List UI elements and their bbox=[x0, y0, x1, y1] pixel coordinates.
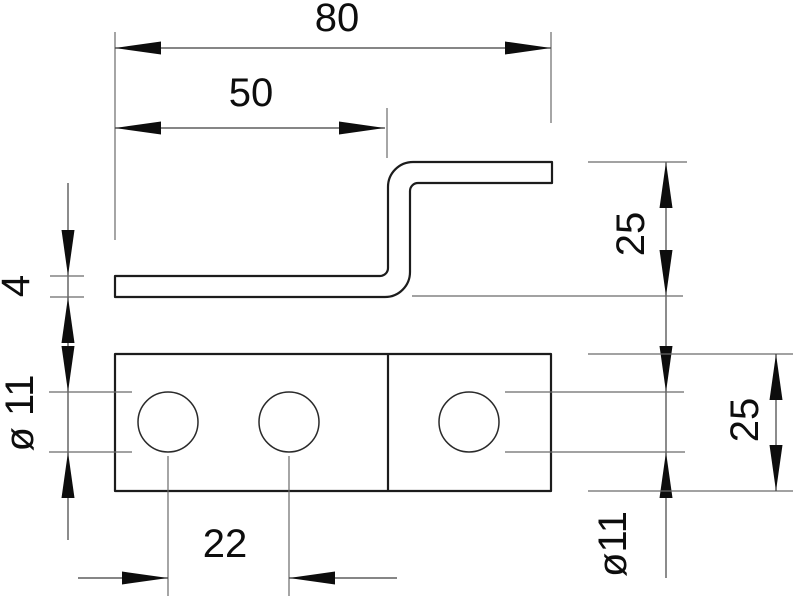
arrowhead-right-icon bbox=[505, 42, 551, 55]
arrowhead-down-icon bbox=[770, 445, 783, 491]
arrowhead-left-icon bbox=[289, 572, 335, 585]
dim-label-profile-height: 25 bbox=[609, 212, 653, 257]
dim-label-hole-spacing: 22 bbox=[203, 522, 248, 566]
arrowhead-right-icon bbox=[122, 572, 168, 585]
plan-view bbox=[115, 354, 551, 491]
arrowhead-up-icon bbox=[62, 452, 75, 498]
arrowhead-down-icon bbox=[62, 230, 75, 276]
dimension-bend-offset: 50 bbox=[115, 71, 387, 158]
dimension-total-width: 80 bbox=[115, 0, 551, 240]
side-view bbox=[115, 162, 552, 297]
dimension-plate-depth: 25 bbox=[588, 354, 793, 491]
dimension-hole-spacing: 22 bbox=[78, 456, 397, 596]
arrowhead-up-icon bbox=[660, 162, 673, 208]
arrowhead-right-icon bbox=[339, 122, 385, 135]
dimension-thickness: 4 bbox=[0, 230, 84, 343]
arrowhead-down-icon bbox=[660, 346, 673, 392]
arrowhead-up-icon bbox=[62, 297, 75, 343]
arrowhead-left-icon bbox=[115, 42, 161, 55]
hole-3 bbox=[439, 392, 499, 452]
plate-outline bbox=[115, 354, 551, 491]
z-profile-outline bbox=[115, 162, 552, 297]
technical-drawing: 80 50 4 ø 11 bbox=[0, 0, 794, 598]
dimension-hole-diameter-side: ø 11 bbox=[0, 346, 132, 498]
drawing-canvas: 80 50 4 ø 11 bbox=[0, 0, 794, 598]
dim-label-hole-diameter-side: ø 11 bbox=[0, 374, 42, 451]
arrowhead-down-icon bbox=[660, 250, 673, 296]
arrowhead-left-icon bbox=[115, 122, 161, 135]
hole-2 bbox=[259, 392, 319, 452]
dim-label-total-width: 80 bbox=[315, 0, 360, 40]
arrowhead-up-icon bbox=[770, 354, 783, 400]
dim-label-thickness: 4 bbox=[0, 275, 38, 297]
dimension-hole-diameter-plan: ø11 bbox=[505, 346, 685, 577]
dim-label-hole-diameter-plan: ø11 bbox=[591, 511, 635, 577]
arrowhead-down-icon bbox=[62, 346, 75, 392]
hole-1 bbox=[138, 392, 198, 452]
dim-label-bend-offset: 50 bbox=[229, 71, 274, 115]
dim-label-plate-depth: 25 bbox=[723, 398, 767, 443]
